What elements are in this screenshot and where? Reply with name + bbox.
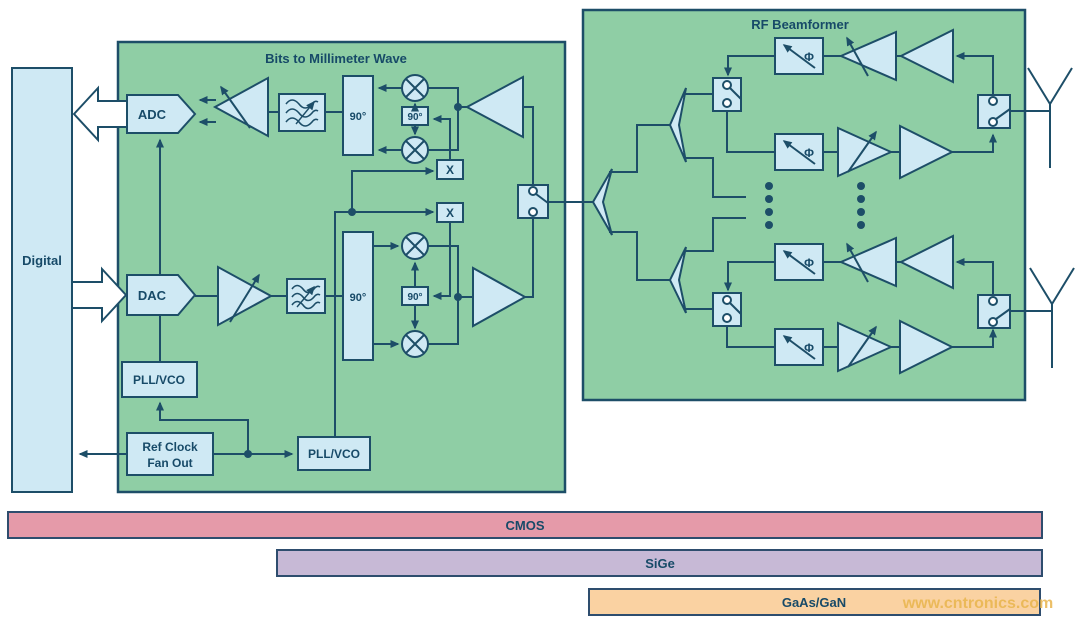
ch1-ant-port-bottom — [989, 118, 997, 126]
ch2-ant-port-bottom — [989, 318, 997, 326]
ch1-ant-port-top — [989, 97, 997, 105]
tx-multiplier-label: X — [446, 206, 454, 220]
digital-label: Digital — [22, 253, 62, 268]
ch2-antenna-icon — [1030, 268, 1074, 368]
tx-90deg-lo-label: 90° — [407, 292, 422, 303]
technology-bars: CMOS SiGe GaAs/GaN — [8, 512, 1042, 615]
ch2-ant-port-top — [989, 297, 997, 305]
rx-90deg-lo-label: 90° — [407, 112, 422, 123]
ref-clock-label-1: Ref Clock — [142, 440, 198, 454]
pll-vco-1-label: PLL/VCO — [133, 373, 185, 387]
gaas-gan-label: GaAs/GaN — [782, 595, 846, 610]
diagram-canvas: Digital Bits to Millimeter Wave RF Beamf… — [0, 0, 1080, 619]
adc-label: ADC — [138, 107, 167, 122]
ref-clock-label-2: Fan Out — [147, 456, 192, 470]
cmos-label: CMOS — [506, 518, 545, 533]
switch-port-bottom — [529, 208, 537, 216]
rx-90deg-label: 90° — [350, 111, 367, 123]
ch1-tr-port-bottom — [723, 99, 731, 107]
rf-box-title: RF Beamformer — [751, 17, 849, 32]
rx-multiplier-label: X — [446, 163, 454, 177]
digital-block — [12, 68, 72, 492]
pll-vco-2-label: PLL/VCO — [308, 447, 360, 461]
ch2-tr-port-bottom — [723, 314, 731, 322]
dac-label: DAC — [138, 288, 167, 303]
sige-label: SiGe — [645, 556, 675, 571]
switch-port-top — [529, 187, 537, 195]
rf-architecture-diagram: Digital Bits to Millimeter Wave RF Beamf… — [0, 0, 1080, 619]
ch1-antenna-icon — [1028, 68, 1072, 168]
ch1-tr-port-top — [723, 81, 731, 89]
tx-90deg-label: 90° — [350, 292, 367, 304]
watermark: www.cntronics.com — [902, 595, 1054, 612]
ch2-tr-port-top — [723, 296, 731, 304]
bits-box-title: Bits to Millimeter Wave — [265, 51, 407, 66]
